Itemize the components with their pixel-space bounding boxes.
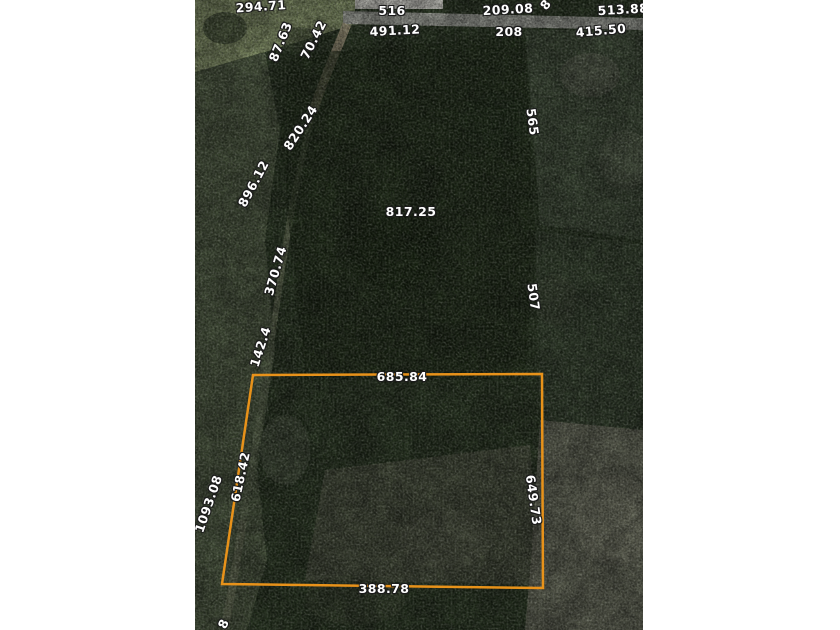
aerial-imagery[interactable]: 294.71 87.63 70.42 516 491.12 209.08 208…: [195, 0, 643, 630]
parcel-top-length-label: 685.84: [377, 371, 428, 384]
dimension-label: 817.25: [386, 206, 437, 219]
noise-light: [195, 0, 643, 630]
dimension-label: 516: [378, 5, 405, 18]
dimension-label: 491.12: [369, 23, 420, 38]
dimension-label: 208: [495, 26, 522, 39]
dimension-label: 565: [524, 108, 540, 137]
parcel-bottom-length-label: 388.78: [359, 583, 410, 596]
dimension-label: 209.08: [482, 2, 533, 17]
survey-map-canvas: 294.71 87.63 70.42 516 491.12 209.08 208…: [0, 0, 840, 630]
dimension-label: 507: [525, 283, 541, 312]
dimension-label: 513.88: [597, 2, 643, 17]
aerial-texture: [195, 0, 643, 630]
